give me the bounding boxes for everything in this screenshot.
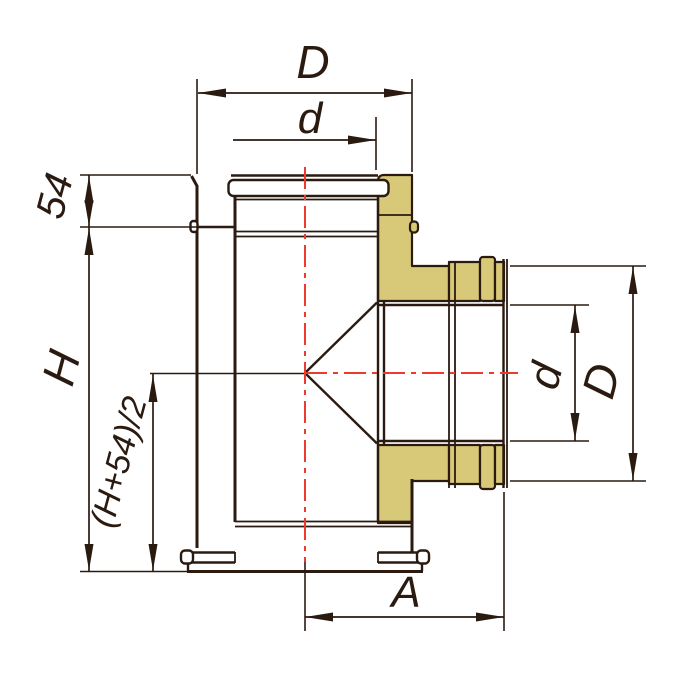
drawing-canvas: D d 54 H (H+54)/2 A d D — [0, 0, 700, 700]
label-body-height: H — [32, 344, 91, 390]
bell-bead-left — [181, 551, 193, 564]
label-branch-length: A — [388, 568, 420, 617]
arrow-up — [571, 306, 580, 333]
cone-diagonal-upper — [305, 303, 377, 374]
tee-section-drawing: D d 54 H (H+54)/2 A d D — [0, 0, 700, 700]
arrow-down — [85, 544, 94, 571]
arrow-down — [629, 453, 638, 480]
label-branch-inner-diameter: d — [519, 356, 573, 394]
arrow-up — [149, 375, 158, 402]
label-socket-depth: 54 — [28, 169, 82, 223]
insulation-upper-bead — [480, 257, 495, 301]
insulation-lower-socket — [449, 445, 480, 484]
label-top-inner-diameter: d — [298, 94, 324, 143]
arrow-left — [305, 613, 333, 622]
cone-diagonal-lower — [305, 373, 377, 444]
dimension-54 — [80, 175, 197, 227]
dimension-H54-half — [149, 374, 306, 572]
arrow-down — [149, 544, 158, 571]
arrow-up — [629, 267, 638, 294]
insulation-fill — [378, 175, 504, 523]
bell-bead-right — [417, 551, 429, 564]
dimension-labels: D d 54 H (H+54)/2 A d D — [28, 36, 630, 617]
arrow-right — [348, 136, 376, 145]
top-bead-ring — [229, 180, 389, 196]
arrow-left — [198, 89, 226, 98]
arrow-right — [384, 89, 412, 98]
arrow-up — [85, 228, 94, 255]
insulation-joint-bump — [410, 222, 418, 233]
insulation-lower-bead — [480, 445, 495, 489]
arrow-down — [571, 413, 580, 440]
label-axis-height-formula: (H+54)/2 — [83, 393, 154, 532]
arrow-right — [476, 613, 504, 622]
label-top-outer-diameter: D — [296, 36, 329, 88]
label-branch-outer-diameter: D — [572, 358, 631, 404]
insulation-upper-socket — [449, 262, 480, 301]
